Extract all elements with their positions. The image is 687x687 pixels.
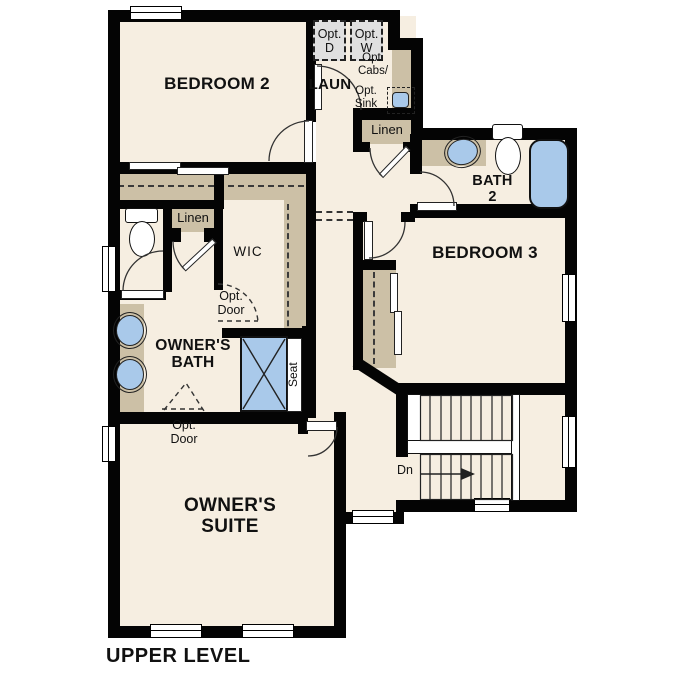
closet-rod <box>373 272 375 364</box>
bathtub-icon <box>529 139 569 209</box>
stair-rail <box>511 394 520 501</box>
opt-sink-label: Opt. Sink <box>346 85 386 110</box>
owners-bath-label: OWNER'S BATH <box>146 337 240 372</box>
bedroom2-label: BEDROOM 2 <box>132 74 302 93</box>
dryer-icon: Opt. D <box>313 20 346 61</box>
window <box>474 498 510 512</box>
stairs-down-label: Dn <box>392 464 418 478</box>
linen-hall-label: Linen <box>362 123 412 137</box>
window <box>562 274 576 322</box>
door-leaf <box>417 202 457 211</box>
bedroom2-closet <box>114 172 214 202</box>
bath2-label: BATH 2 <box>465 173 520 205</box>
window <box>562 416 576 468</box>
sink-icon <box>116 315 144 346</box>
window <box>242 624 294 638</box>
linen-owner-label: Linen <box>170 211 216 225</box>
seat-label: Seat <box>287 344 302 406</box>
window <box>352 510 394 524</box>
hall-dashed-opening <box>316 211 353 221</box>
sliding-door-leaf <box>129 162 181 170</box>
door-leaf <box>306 421 337 431</box>
sliding-door-leaf <box>390 273 398 313</box>
wic-label: WIC <box>224 245 272 260</box>
bedroom3-label: BEDROOM 3 <box>400 243 570 262</box>
door-leaf <box>304 120 313 163</box>
sliding-door-leaf <box>394 311 402 355</box>
sink-icon <box>116 359 144 390</box>
stair-rail <box>407 440 512 454</box>
opt-cabs-label: Opt. Cabs/ <box>350 52 396 77</box>
shower-icon <box>240 336 288 412</box>
opt-door-owners-bath-label: Opt. Door <box>158 419 210 447</box>
owners-suite-label: OWNER'S SUITE <box>148 495 312 538</box>
sliding-door-leaf <box>177 167 229 175</box>
door-leaf <box>121 290 164 299</box>
window <box>102 426 116 462</box>
hallway-mid-floor <box>316 212 356 396</box>
window <box>150 624 202 638</box>
floor-plan: Opt. D Opt. W <box>0 0 687 687</box>
window <box>102 246 116 292</box>
window <box>130 6 182 20</box>
door-leaf <box>364 221 373 260</box>
plan-title: UPPER LEVEL <box>106 645 326 667</box>
opt-door-wic-label: Opt. Door <box>206 290 256 318</box>
closet-rod <box>118 185 214 187</box>
closet-rod <box>228 185 304 187</box>
closet-rod <box>287 204 289 336</box>
